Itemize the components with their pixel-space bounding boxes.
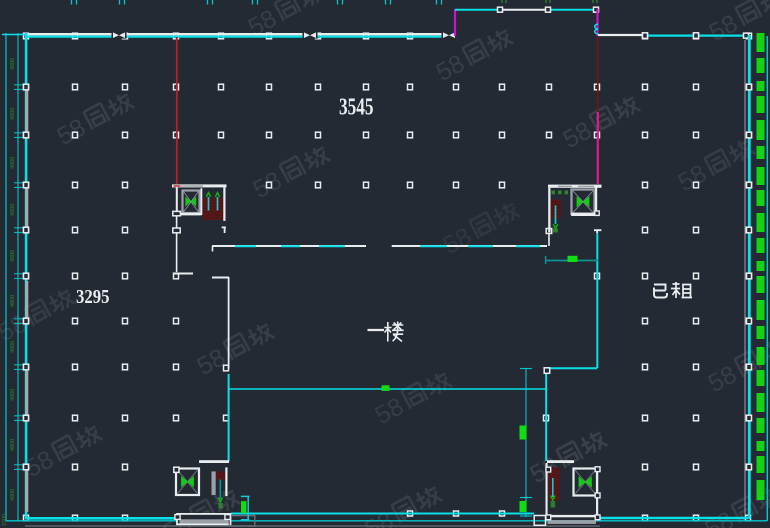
svg-text:4800: 4800 [10,439,16,451]
svg-text:1500: 1500 [2,514,8,526]
svg-text:4800: 4800 [10,389,16,401]
svg-text:4800: 4800 [10,489,16,501]
svg-text:4800: 4800 [10,295,16,307]
svg-text:4800: 4800 [10,204,16,216]
svg-text:3545: 3545 [339,95,374,121]
svg-text:4800: 4800 [10,157,16,169]
svg-text:4800: 4800 [10,341,16,353]
svg-text:4800: 4800 [10,250,16,262]
svg-text:4800: 4800 [10,58,16,70]
svg-text:3295: 3295 [76,286,110,308]
svg-text:4800: 4800 [10,108,16,120]
